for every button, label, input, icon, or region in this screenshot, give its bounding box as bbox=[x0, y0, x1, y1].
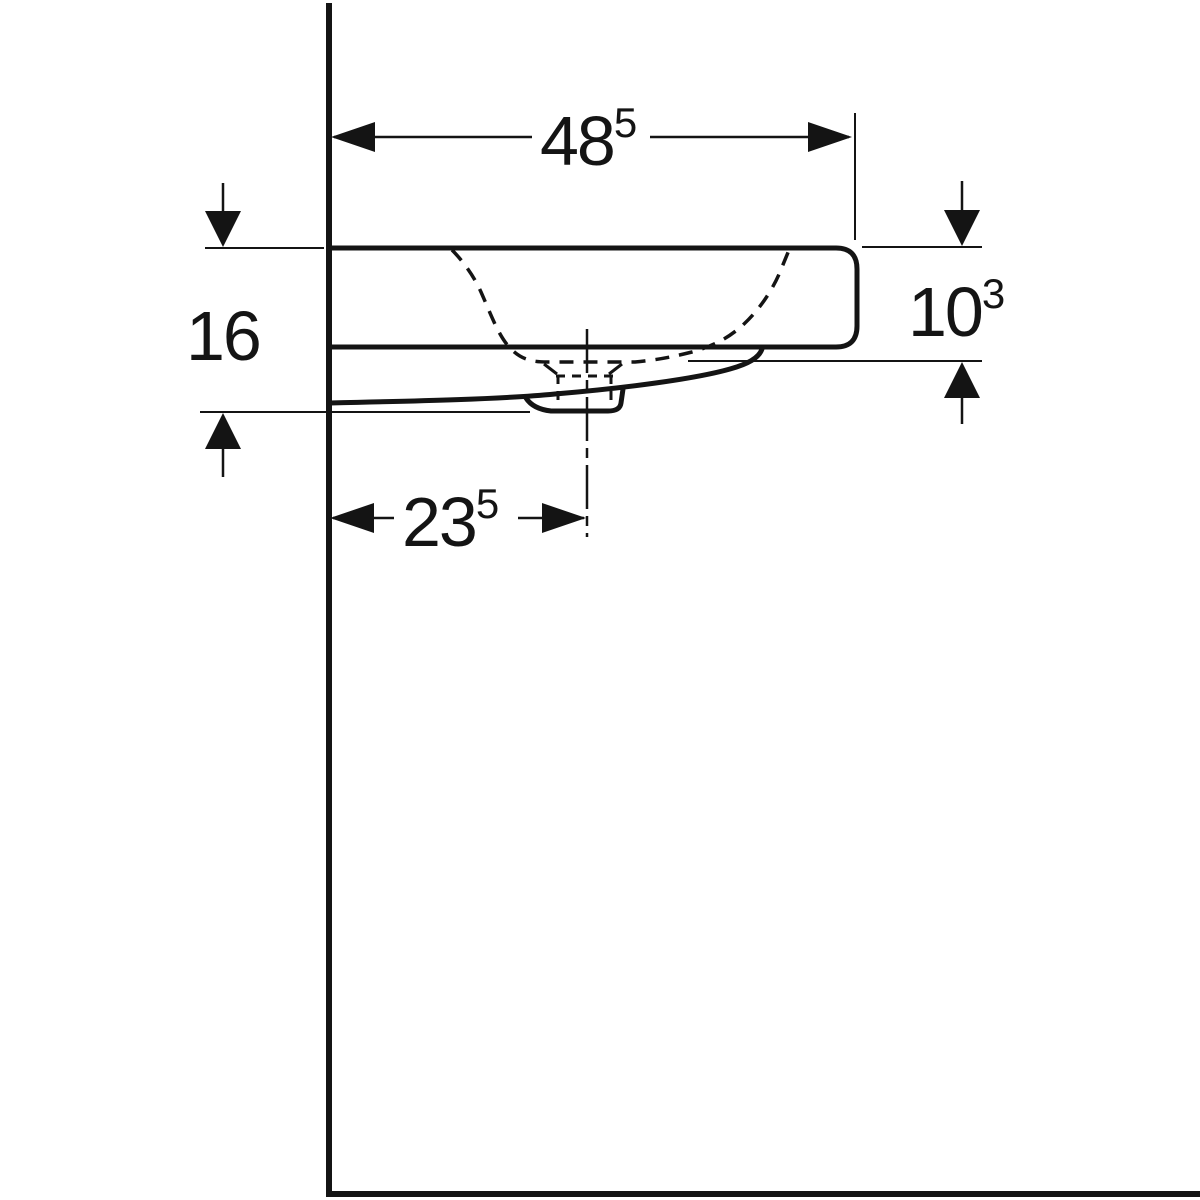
arrow-up-icon bbox=[944, 362, 980, 398]
dimension-drawing: 485 16 103 235 bbox=[0, 0, 1200, 1200]
arrow-down-icon bbox=[944, 210, 980, 246]
arrow-right-icon bbox=[808, 122, 852, 152]
dimension-value: 10 bbox=[908, 273, 982, 351]
dimension-value: 48 bbox=[540, 102, 614, 180]
arrow-right-icon bbox=[542, 503, 586, 533]
basin-outline bbox=[330, 248, 857, 347]
basin-underside-profile bbox=[330, 349, 762, 403]
dimension-superscript: 5 bbox=[476, 480, 498, 527]
drawing-canvas bbox=[0, 0, 1200, 1200]
dimension-width-top-label: 485 bbox=[540, 102, 636, 176]
dimension-superscript: 5 bbox=[614, 99, 636, 146]
dimension-superscript: 3 bbox=[982, 270, 1004, 317]
drain-funnel-tick-left bbox=[544, 364, 557, 374]
dimension-height-left-label: 16 bbox=[186, 297, 260, 371]
arrow-left-icon bbox=[330, 503, 374, 533]
arrow-up-icon bbox=[205, 413, 241, 449]
arrow-left-icon bbox=[331, 122, 375, 152]
arrow-down-icon bbox=[205, 211, 241, 247]
dimension-value: 16 bbox=[186, 297, 260, 375]
dimension-height-right-label: 103 bbox=[908, 273, 1004, 347]
dimension-value: 23 bbox=[402, 483, 476, 561]
dimension-drain-offset-label: 235 bbox=[402, 483, 498, 557]
drain-funnel-tick-right bbox=[609, 364, 622, 374]
